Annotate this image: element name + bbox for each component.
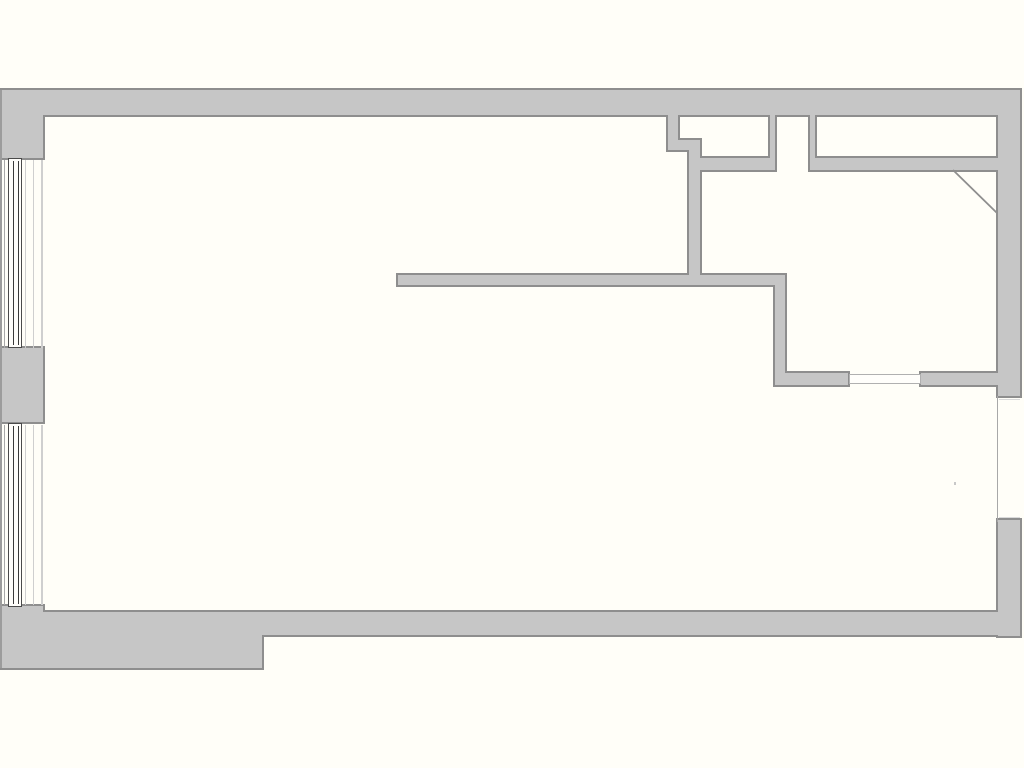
right-opening-top-line [999,399,1020,400]
window-lower-glazing-a [13,426,14,604]
window-upper-reveal-line-a [25,160,26,348]
window-upper-glazing-a [13,161,14,345]
right-opening-inner-face [997,396,999,522]
left-pier-middle [0,348,43,422]
window-upper-glazing-b [18,161,19,345]
partition-mid [398,275,785,285]
left-outer-edge-line [0,90,2,668]
window-lower-reveal-line-b [33,425,34,605]
window-lower-reveal-line-a [25,425,26,605]
floor-plan [0,0,1024,768]
window-upper-reveal-line-b [33,160,34,348]
window-lower-glazing-b [18,426,19,604]
right-opening-bottom-line [999,517,1020,518]
wall-under-closet-2 [810,158,1000,170]
corner-diagonal-line [953,170,997,213]
right-wall-lower [998,520,1020,636]
room-bottom-wall-l [775,373,848,385]
window-lower-inner-face [41,425,43,605]
bottom-wall-right [258,612,1020,635]
top-wall [0,90,1020,115]
door-opening-threshold [849,374,921,384]
closet-divider-left [770,113,775,170]
room-bottom-wall-r [921,373,1000,385]
wall-under-closet-1 [698,158,775,170]
right-wall-upper [998,90,1020,396]
window-upper-inner-face [41,160,43,348]
bottom-wall-left [0,612,262,668]
window-lower-frame [8,423,22,607]
wall-speck [954,482,956,485]
left-pier-top [0,90,43,158]
window-upper-outer-line [4,160,5,348]
window-lower-outer-line [4,425,5,605]
partition-right [775,275,785,385]
window-upper-frame [8,158,22,348]
